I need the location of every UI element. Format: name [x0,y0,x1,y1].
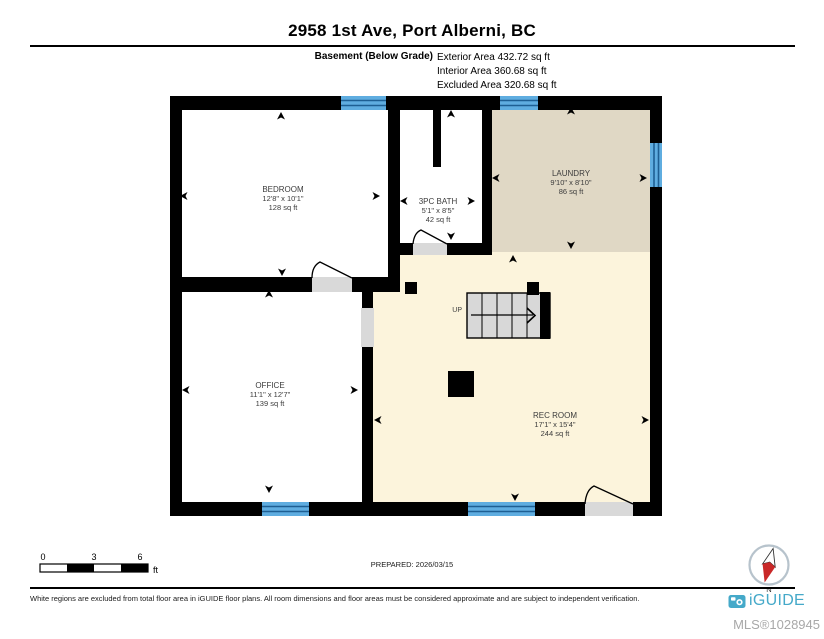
room-dimensions-rec-room: 17'1" x 15'4" [534,420,575,429]
iguide-logo-text: iGUIDE [749,592,805,610]
room-label-bath: 3PC BATH [419,197,458,206]
room-area-office: 139 sq ft [256,399,286,408]
room-dimensions-laundry: 9'10" x 8'10" [550,178,591,187]
room-dimensions-office: 11'1" x 12'7" [250,390,291,399]
exterior-area-line: Exterior Area 432.72 sq ft [437,51,557,65]
disclaimer-text: White regions are excluded from total fl… [30,594,690,603]
iguide-logo: iGUIDE [728,592,805,610]
footer-divider [30,587,795,589]
support-column [448,371,474,397]
room-dimensions-bath: 5'1" x 8'5" [422,206,455,215]
wall-post [405,282,417,294]
floor-plan-canvas: UP BEDROOM 12'8" x 10'1" 128 sq ft 3PC B… [0,0,824,639]
area-summary: Exterior Area 432.72 sq ft Interior Area… [437,51,557,92]
room-area-rec-room: 244 sq ft [541,429,571,438]
page-title: 2958 1st Ave, Port Alberni, BC [0,21,824,41]
excluded-area-line: Excluded Area 320.68 sq ft [437,79,557,93]
mls-number: MLS®1028945 [620,617,820,632]
room-dimensions-bedroom: 12'8" x 10'1" [262,194,303,203]
floor-name-label: Basement (Below Grade) [180,51,433,62]
room-label-rec-room: REC ROOM [533,411,577,420]
room-area-bedroom: 128 sq ft [269,203,299,212]
wall-post [527,282,539,295]
room-area-bath: 42 sq ft [426,215,452,224]
iguide-logo-icon [728,594,746,609]
prepared-date-label: PREPARED: 2026/03/15 [0,560,824,569]
rec-room-floor [362,240,662,516]
stairs-up-label: UP [452,307,462,314]
interior-area-line: Interior Area 360.68 sq ft [437,65,557,79]
room-label-laundry: LAUNDRY [552,169,591,178]
room-label-office: OFFICE [255,381,284,390]
stair-landing-edge [540,292,550,339]
room-area-laundry: 86 sq ft [559,187,585,196]
header-divider [30,45,795,47]
room-label-bedroom: BEDROOM [262,185,304,194]
